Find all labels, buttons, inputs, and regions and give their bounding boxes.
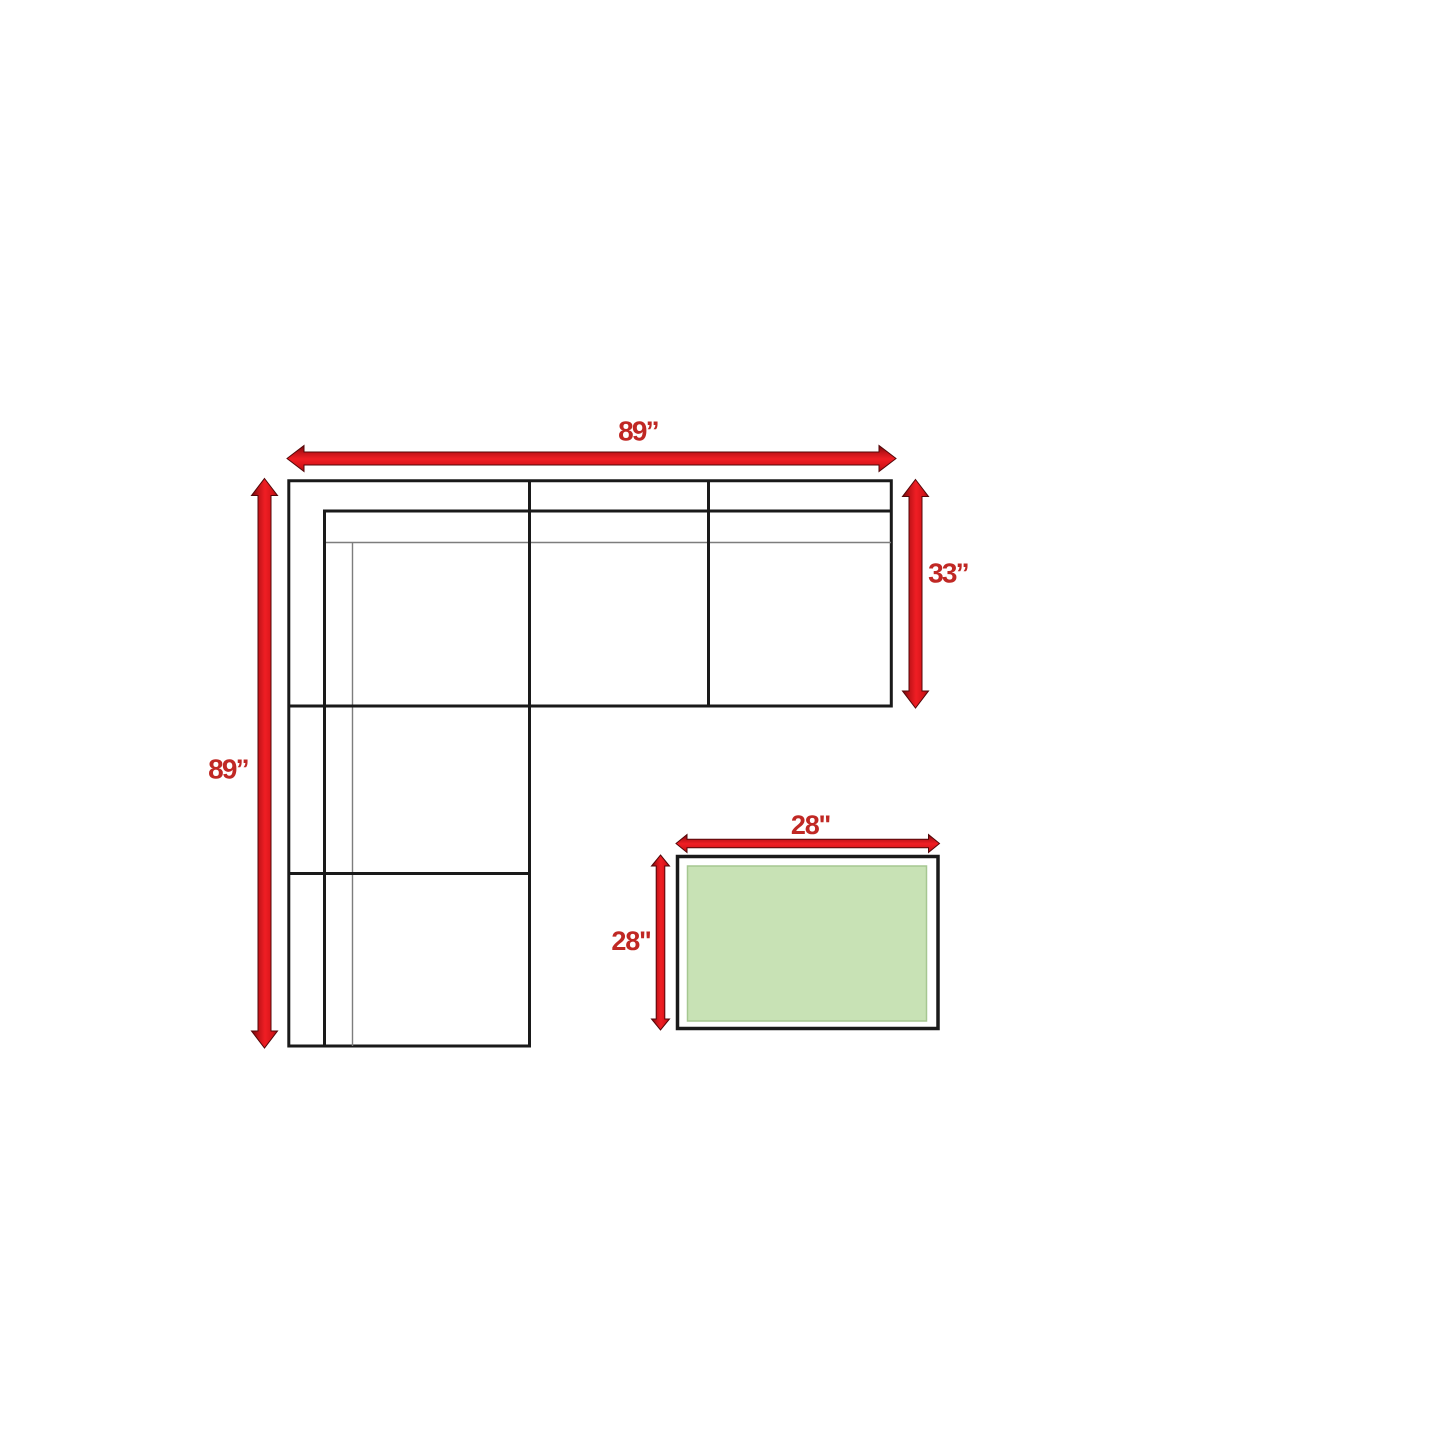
svg-text:89”: 89” [208, 754, 248, 785]
svg-text:28": 28" [611, 926, 651, 956]
svg-text:33”: 33” [928, 558, 968, 589]
svg-text:28": 28" [791, 810, 831, 840]
svg-text:89”: 89” [618, 416, 658, 447]
